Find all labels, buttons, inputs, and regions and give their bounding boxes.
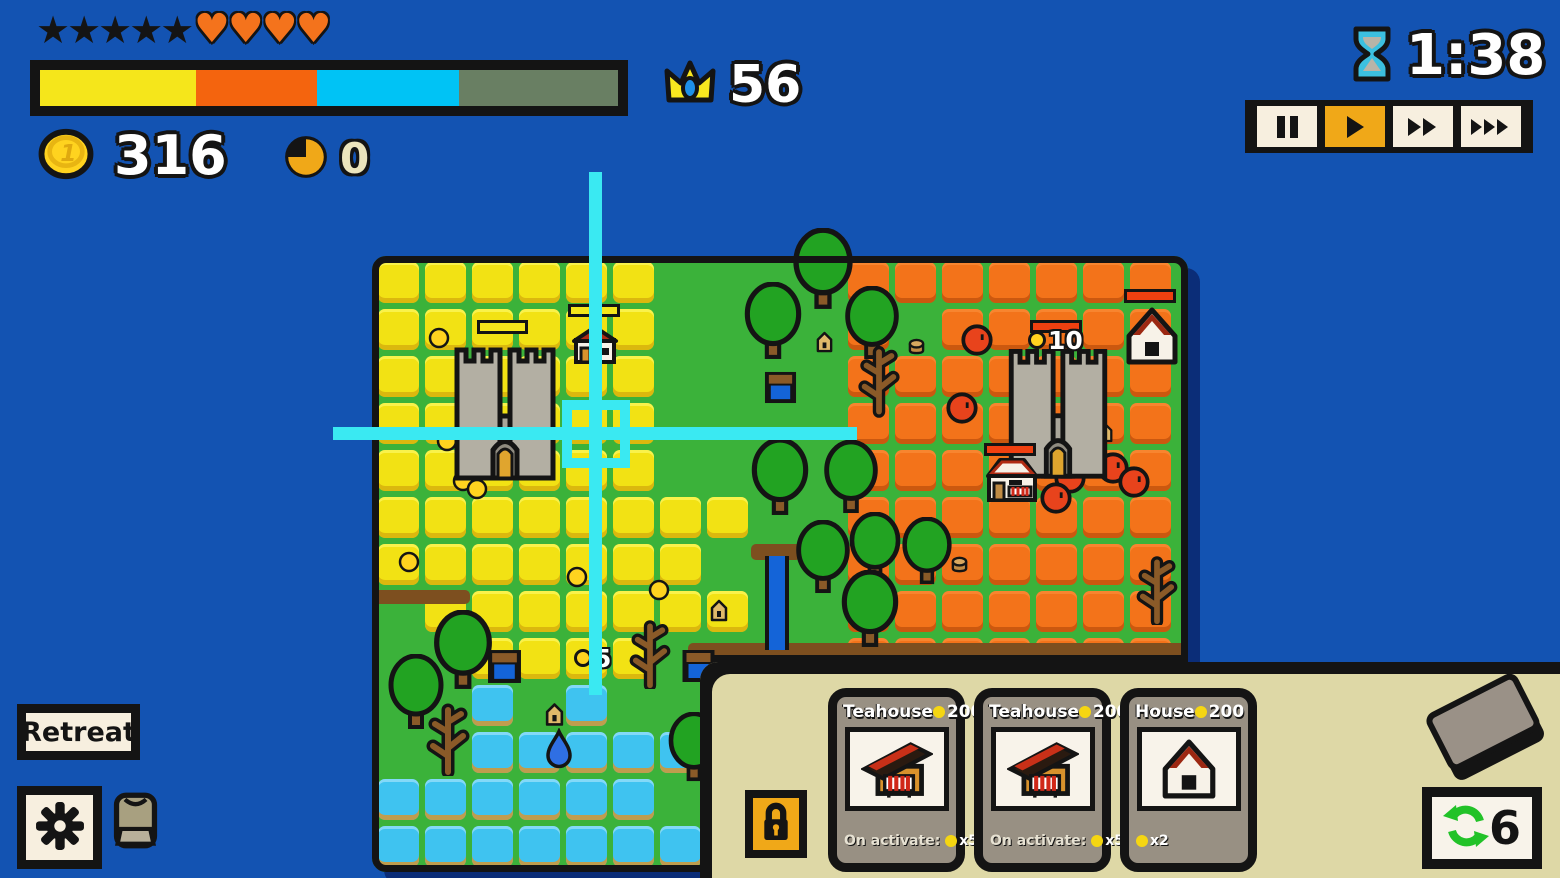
timer: 1:38: [1348, 24, 1545, 88]
pie-chart-icon: [282, 134, 330, 184]
pie-counter: 0: [282, 134, 369, 184]
map-tile-orange[interactable]: [942, 591, 983, 632]
map-tile-yellow[interactable]: [472, 544, 513, 585]
card-teahouse-1[interactable]: Teahouse 200 On activate: x5: [828, 688, 965, 872]
progress-segment-orange: [196, 70, 317, 106]
map-tile-water[interactable]: [613, 779, 654, 820]
fastest-forward-button[interactable]: [1461, 106, 1521, 147]
map-tile-water[interactable]: [566, 779, 607, 820]
map-tile-yellow[interactable]: [660, 497, 701, 538]
card-effect: On activate: x5: [844, 833, 978, 849]
map-tile-orange[interactable]: [1083, 262, 1124, 303]
retreat-button[interactable]: Retreat: [17, 704, 140, 760]
enemy-unit[interactable]: [960, 323, 994, 357]
tree-icon: [838, 570, 902, 648]
dead-tree-icon: [423, 698, 473, 776]
play-icon: [1347, 116, 1364, 138]
crown-counter: 56: [663, 58, 801, 112]
map-tile-water[interactable]: [472, 826, 513, 867]
card-panel: Teahouse 200 On activate: x5 Teahouse 20…: [700, 662, 1560, 878]
map-tile-orange[interactable]: [1083, 544, 1124, 585]
fast-forward-icon: [1408, 118, 1421, 136]
enemy-unit[interactable]: [1117, 465, 1151, 499]
water-droplet-icon: [545, 728, 573, 769]
map-tile-water[interactable]: [519, 779, 560, 820]
coin-count-label: 10: [1028, 326, 1088, 354]
map-tile-yellow[interactable]: [425, 262, 466, 303]
map-tile-orange[interactable]: [1036, 544, 1077, 585]
settings-button[interactable]: [17, 786, 102, 869]
tree-icon: [748, 438, 812, 516]
retreat-label: Retreat: [21, 717, 136, 748]
enemy-unit[interactable]: [945, 391, 979, 425]
fast-forward-button[interactable]: [1393, 106, 1453, 147]
pause-button[interactable]: [1257, 106, 1317, 147]
card-title: Teahouse: [989, 702, 1079, 722]
map-tile-yellow[interactable]: [519, 591, 560, 632]
tree-icon: [742, 282, 804, 360]
map-tile-yellow[interactable]: [425, 544, 466, 585]
map-tile-water[interactable]: [519, 826, 560, 867]
coin-counter: 1 316: [38, 128, 227, 184]
map-tile-water[interactable]: [472, 779, 513, 820]
teahouse-icon: [845, 727, 949, 811]
castle-icon[interactable]: [452, 330, 558, 484]
map-tile-yellow[interactable]: [519, 262, 560, 303]
play-button[interactable]: [1325, 106, 1385, 147]
tree-icon: [820, 440, 882, 514]
house-icon: [1137, 727, 1241, 811]
coin-count: 316: [114, 129, 227, 183]
coin-icon: [945, 835, 957, 847]
inn-icon[interactable]: [984, 456, 1040, 504]
dead-tree-icon: [1133, 551, 1181, 625]
map-tile-yellow[interactable]: [472, 497, 513, 538]
coin-pickup[interactable]: [566, 566, 588, 588]
crown-icon: [663, 58, 717, 112]
hut-icon: [544, 701, 565, 728]
lives-hearts: ♥♥♥♥: [194, 6, 329, 52]
progress-segment-cyan: [317, 70, 459, 106]
card-teahouse-2[interactable]: Teahouse 200 On activate: x5: [974, 688, 1111, 872]
timer-value: 1:38: [1406, 28, 1545, 84]
svg-text:1: 1: [60, 139, 76, 167]
hourglass-icon: [1348, 24, 1396, 88]
pie-count: 0: [340, 138, 369, 180]
map-tile-water[interactable]: [613, 826, 654, 867]
coin-pickup[interactable]: [428, 327, 450, 349]
map-tile-orange[interactable]: [989, 544, 1030, 585]
coin-pickup[interactable]: [648, 579, 670, 601]
map-tile-yellow[interactable]: [425, 497, 466, 538]
map-tile-water[interactable]: [378, 779, 419, 820]
map-tile-water[interactable]: [425, 779, 466, 820]
map-tile-orange[interactable]: [1036, 262, 1077, 303]
health-bar: [984, 443, 1036, 456]
playback-controls: [1245, 100, 1533, 153]
card-effect: On activate: x5: [990, 833, 1124, 849]
map-tile-yellow[interactable]: [707, 497, 748, 538]
map-tile-water[interactable]: [472, 685, 513, 726]
padlock-icon: [758, 800, 794, 848]
card-title: House: [1135, 702, 1195, 722]
map-tile-yellow[interactable]: [378, 450, 419, 491]
card-effect: x2: [1136, 833, 1169, 849]
enemy-unit[interactable]: [1039, 481, 1073, 515]
coin-icon: [1136, 835, 1148, 847]
river: [765, 556, 789, 650]
card-title: Teahouse: [843, 702, 933, 722]
hut-icon: [709, 598, 729, 623]
gear-icon: [35, 801, 85, 855]
dead-tree-icon: [856, 338, 902, 418]
dirt-patch: [374, 590, 470, 604]
card-cost: 200: [1195, 702, 1245, 722]
health-bar: [1124, 289, 1176, 303]
coin-icon: [933, 706, 945, 718]
dead-tree-icon: [626, 615, 674, 689]
map-tile-water[interactable]: [378, 826, 419, 867]
map-tile-yellow[interactable]: [613, 262, 654, 303]
map-tile-yellow[interactable]: [519, 638, 560, 679]
map-tile-water[interactable]: [613, 732, 654, 773]
hut-icon: [815, 330, 834, 354]
map-tile-orange[interactable]: [1130, 403, 1171, 444]
map-tile-orange[interactable]: [942, 450, 983, 491]
map-tile-orange[interactable]: [942, 262, 983, 303]
card-house[interactable]: House 200 x2: [1120, 688, 1257, 872]
map-tile-water[interactable]: [472, 732, 513, 773]
map-tile-yellow[interactable]: [519, 497, 560, 538]
lock-button[interactable]: [745, 790, 807, 858]
redraw-button[interactable]: 6: [1422, 787, 1542, 869]
map-tile-water[interactable]: [566, 826, 607, 867]
tree-icon: [899, 517, 955, 585]
coin-icon: [1079, 706, 1091, 718]
map-tile-orange[interactable]: [989, 591, 1030, 632]
map-tile-orange[interactable]: [1083, 497, 1124, 538]
coin-icon: 1: [38, 128, 94, 184]
game-screen: 105 ★★★★★ ♥♥♥♥ 1 316 0 56 1:38: [0, 0, 1560, 878]
progress-segment-gray: [459, 70, 618, 106]
star-rating: ★★★★★: [36, 8, 191, 52]
stump-icon: [906, 338, 927, 355]
map-tile-yellow[interactable]: [378, 262, 419, 303]
backpack-icon[interactable]: [111, 791, 160, 850]
map-tile-orange[interactable]: [1036, 591, 1077, 632]
house-icon[interactable]: [1125, 306, 1179, 366]
crosshair-target-square: [562, 400, 630, 468]
coin-icon: [1091, 835, 1103, 847]
map-tile-orange[interactable]: [1130, 497, 1171, 538]
map-tile-water[interactable]: [660, 826, 701, 867]
card-deck[interactable]: [1423, 670, 1543, 773]
map-tile-yellow[interactable]: [613, 497, 654, 538]
health-bar: [477, 320, 528, 334]
map-tile-yellow[interactable]: [472, 262, 513, 303]
territory-progress-bar: [30, 60, 628, 116]
coin-icon: [1028, 331, 1046, 349]
progress-segment-yellow: [40, 70, 196, 106]
coin-icon: [1195, 706, 1207, 718]
crown-count: 56: [729, 59, 801, 111]
map-tile-water[interactable]: [425, 826, 466, 867]
fastest-forward-icon: [1471, 119, 1482, 135]
map-tile-yellow[interactable]: [519, 544, 560, 585]
map-tile-orange[interactable]: [895, 450, 936, 491]
teahouse-icon: [991, 727, 1095, 811]
redraw-count: 6: [1489, 805, 1521, 851]
map-tile-yellow[interactable]: [378, 497, 419, 538]
map-tile-orange[interactable]: [989, 262, 1030, 303]
coin-pickup[interactable]: [398, 551, 420, 573]
map-tile-yellow[interactable]: [613, 356, 654, 397]
recycle-icon: [1443, 803, 1489, 853]
pause-icon: [1277, 116, 1285, 138]
map-tile-yellow[interactable]: [378, 309, 419, 350]
map-tile-orange[interactable]: [1083, 591, 1124, 632]
map-tile-yellow[interactable]: [378, 356, 419, 397]
well-icon: [763, 371, 798, 404]
